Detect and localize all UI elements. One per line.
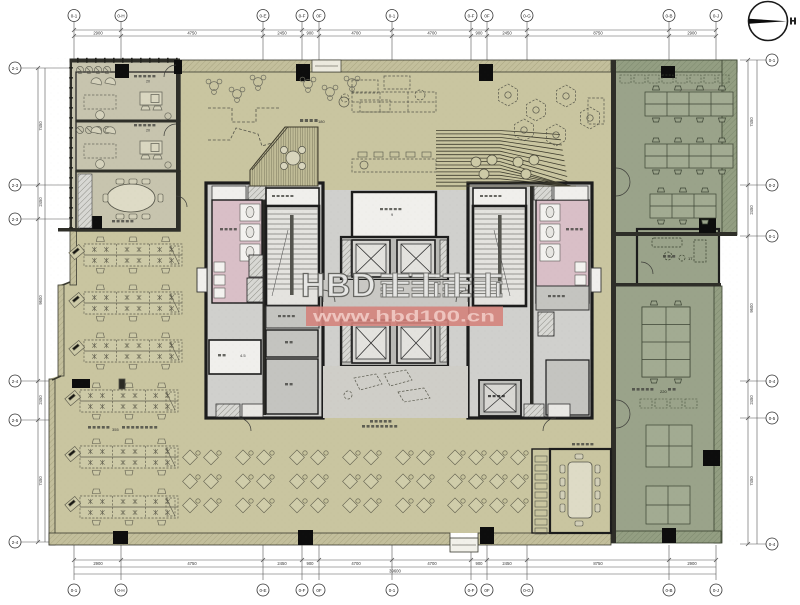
svg-text:0-1: 0-1 <box>389 13 396 18</box>
svg-text:900: 900 <box>307 31 315 36</box>
svg-text:39600: 39600 <box>389 569 401 574</box>
svg-text:2-1: 2-1 <box>12 66 19 71</box>
svg-text:2450: 2450 <box>749 205 754 215</box>
svg-text:900: 900 <box>307 561 315 566</box>
svg-text:2900: 2900 <box>687 561 697 566</box>
svg-text:www.hbd100.cn: www.hbd100.cn <box>311 309 495 326</box>
svg-text:0-H: 0-H <box>117 588 124 593</box>
svg-text:7450: 7450 <box>749 117 754 127</box>
svg-text:900: 900 <box>476 561 484 566</box>
svg-text:0-B: 0-B <box>665 13 672 18</box>
svg-text:2450: 2450 <box>502 31 512 36</box>
svg-text:900: 900 <box>476 31 484 36</box>
svg-text:4700: 4700 <box>427 561 437 566</box>
svg-text:7450: 7450 <box>749 476 754 486</box>
svg-text:2-3: 2-3 <box>12 183 19 188</box>
svg-text:0-4: 0-4 <box>769 379 776 384</box>
svg-text:9600: 9600 <box>38 295 43 305</box>
svg-text:0-G: 0-G <box>523 13 531 18</box>
svg-text:0-H: 0-H <box>117 13 124 18</box>
svg-text:0F: 0F <box>316 588 322 593</box>
svg-text:2900: 2900 <box>687 31 697 36</box>
svg-text:2-4: 2-4 <box>12 540 19 545</box>
svg-text:2-4: 2-4 <box>12 379 19 384</box>
svg-text:0-E: 0-E <box>259 13 266 18</box>
svg-text:2900: 2900 <box>93 561 103 566</box>
svg-text:HBD: HBD <box>301 268 377 305</box>
svg-text:0-J: 0-J <box>713 13 719 18</box>
svg-text:0-F: 0-F <box>299 588 306 593</box>
svg-text:2450: 2450 <box>277 561 287 566</box>
svg-text:4700: 4700 <box>351 561 361 566</box>
svg-text:7450: 7450 <box>38 476 43 486</box>
svg-text:0-E: 0-E <box>259 588 266 593</box>
svg-text:2-3: 2-3 <box>12 217 19 222</box>
svg-text:2450: 2450 <box>38 395 43 405</box>
svg-text:2450: 2450 <box>277 31 287 36</box>
svg-text:0F: 0F <box>484 13 490 18</box>
svg-text:0-1: 0-1 <box>389 588 396 593</box>
svg-text:8750: 8750 <box>593 561 603 566</box>
svg-text:0-F: 0-F <box>468 13 475 18</box>
svg-text:4700: 4700 <box>351 31 361 36</box>
svg-text:0F: 0F <box>316 13 322 18</box>
svg-text:9600: 9600 <box>749 303 754 313</box>
svg-text:0-J: 0-J <box>713 588 719 593</box>
svg-text:4750: 4750 <box>187 31 197 36</box>
svg-text:2450: 2450 <box>749 395 754 405</box>
svg-text:4750: 4750 <box>187 561 197 566</box>
svg-text:0-B: 0-B <box>665 588 672 593</box>
svg-text:7450: 7450 <box>38 121 43 131</box>
svg-text:0-F: 0-F <box>468 588 475 593</box>
svg-text:4700: 4700 <box>427 31 437 36</box>
svg-text:0-1: 0-1 <box>71 588 78 593</box>
svg-text:0-4: 0-4 <box>769 542 776 547</box>
svg-text:0-1: 0-1 <box>71 13 78 18</box>
svg-text:0-5: 0-5 <box>769 416 776 421</box>
svg-text:0-1: 0-1 <box>769 234 776 239</box>
svg-text:8750: 8750 <box>593 31 603 36</box>
svg-text:2450: 2450 <box>38 197 43 207</box>
svg-text:2-5: 2-5 <box>12 418 19 423</box>
svg-text:0F: 0F <box>484 588 490 593</box>
svg-text:0-2: 0-2 <box>769 183 776 188</box>
svg-text:0-1: 0-1 <box>769 58 776 63</box>
svg-text:2900: 2900 <box>93 31 103 36</box>
svg-text:0-G: 0-G <box>523 588 531 593</box>
svg-text:0-F: 0-F <box>299 13 306 18</box>
svg-text:2450: 2450 <box>502 561 512 566</box>
